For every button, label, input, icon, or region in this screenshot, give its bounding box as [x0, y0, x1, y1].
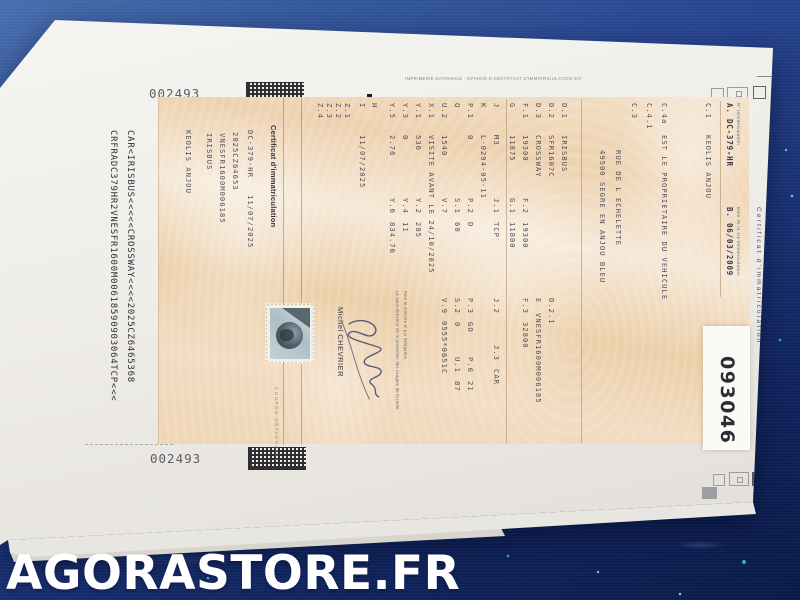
cert-field-cell: CAR	[492, 369, 501, 385]
marianne-emblem	[276, 322, 303, 349]
cert-field-cell: Z.3	[325, 103, 334, 119]
cert-field-row: G11875G.111800	[507, 95, 517, 447]
cert-field-cell: Z.4	[316, 103, 325, 119]
cert-field-cell: IRISBUS	[205, 133, 214, 170]
cert-field-row: JM3J.1TCPJ.2J.3CAR	[491, 95, 501, 447]
cert-field-cell: 19300	[521, 222, 530, 249]
paper-stack: 002493 IMPRIMERIE NATIONALE - EPHIGIE E-…	[0, 0, 800, 600]
cert-field-cell: J.2	[492, 298, 501, 314]
cert-field-row: Z.2	[333, 95, 343, 447]
cert-field-row: KEOLIS ANJOU	[183, 95, 193, 447]
print-density-patch	[702, 487, 717, 499]
cert-field-cell: VNESFR1600M006185	[534, 313, 543, 404]
cert-field-cell: Y.1	[414, 103, 423, 119]
cert-field-cell: P.3	[466, 298, 475, 314]
cert-field-cell: 11	[401, 222, 410, 233]
cert-field-cell: Y.5	[388, 103, 397, 119]
cert-field-cell: F.3	[521, 298, 530, 314]
cert-field-cell: D.1	[560, 103, 569, 119]
cert-field-cell: KEOLIS ANJOU	[704, 135, 713, 199]
cert-field-cell: D.3	[534, 103, 543, 119]
agorastore-watermark: AGORASTORE.FR	[6, 546, 460, 600]
cert-field-row: D.1IRISBUS	[559, 95, 569, 447]
signer-name: Michel CHEVRIER	[336, 307, 345, 377]
cert-field-cell: 11800	[508, 222, 517, 249]
cert-field-row: D.2SFR1607CD.2.1	[546, 95, 556, 447]
cert-field-cell: P.1	[466, 103, 475, 119]
cert-field-cell: F.2	[521, 198, 530, 214]
cert-field-cell: C.4a	[660, 103, 669, 124]
cert-field-cell: 0	[466, 135, 475, 140]
cert-field-cell: 11/07/2025	[246, 195, 255, 248]
cert-field-cell: 21	[466, 381, 475, 392]
cert-field-cell: 2.76	[388, 135, 397, 156]
cert-field-row: X.1VISITE AVANT LE 24/10/2025	[426, 95, 436, 447]
cert-field-cell: IRISBUS	[560, 135, 569, 172]
cert-field-cell: Y.3	[401, 103, 410, 119]
cert-field-cell: M3	[492, 135, 501, 146]
official-delegation-line: Pour le ministre et par délégation,	[403, 291, 408, 361]
cert-field-cell: 11/07/2025	[358, 135, 367, 188]
cert-field-cell: Z.2	[334, 103, 343, 119]
cert-field-cell: 11875	[508, 135, 517, 162]
cert-field-row: 2025CZ64653	[230, 95, 240, 447]
cert-field-row: C.4aEST LE PROPRIETAIRE DU VEHICULE	[659, 95, 669, 447]
cert-field-row: U.21540V.7V.90555*0651C	[439, 95, 449, 447]
divider-line	[720, 101, 721, 297]
cert-field-row: 49500 SEGRE EN ANJOU BLEU	[597, 95, 607, 447]
cert-field-cell: 87	[453, 381, 462, 392]
cert-field-cell: 49500 SEGRE EN ANJOU BLEU	[598, 150, 607, 283]
cert-field-cell: 2025CZ64653	[231, 132, 240, 191]
cert-field-row: C.4.1	[644, 95, 654, 447]
print-calibration-box	[729, 472, 749, 486]
cert-field-cell: TCP	[492, 222, 501, 238]
coupon-title: Certificat d'immatriculation	[269, 125, 278, 227]
coupon-fold-line	[283, 97, 284, 445]
cert-field-cell: I	[358, 103, 367, 108]
cert-field-cell: Z.1	[343, 103, 352, 119]
cert-field-cell: SFR1607C	[547, 135, 556, 178]
cert-field-cell: E	[534, 298, 543, 303]
divider-line	[581, 99, 582, 443]
cert-field-row: QS.160S.20U.187	[452, 95, 462, 447]
cert-field-cell: Q	[453, 103, 462, 108]
registration-certificate: Certificat d'immatriculation N° immatric…	[100, 95, 765, 447]
cert-field-cell: D.2.1	[547, 298, 556, 325]
cert-field-cell: C.4.1	[645, 103, 654, 130]
cert-field-cell: 536	[414, 135, 423, 151]
certificate-rotated-area: Certificat d'immatriculation N° immatric…	[100, 95, 765, 447]
mrz-line-2: CRFRADC379HR2VNESFR1600M00618590903064TC…	[108, 130, 118, 401]
cert-field-cell: P.6	[466, 357, 475, 373]
cert-field-cell: Y.2	[414, 198, 423, 214]
cert-field-row: Z.4	[315, 95, 325, 447]
cert-field-cell: VNESFR1600M006185	[218, 133, 227, 224]
cert-field-cell: 1540	[440, 135, 449, 156]
cert-field-cell: F.1	[521, 103, 530, 119]
cert-field-cell: H	[370, 103, 379, 108]
cert-field-cell: 834.76	[388, 222, 397, 254]
cert-field-cell: C.1	[704, 103, 713, 119]
stamp-background	[270, 308, 310, 359]
cert-field-cell: GO	[466, 322, 475, 333]
cert-field-cell: L-0294-05-11	[479, 135, 488, 199]
cert-field-cell: Y.6	[388, 198, 397, 214]
cert-field-row: VNESFR1600M006185	[217, 95, 227, 447]
cert-field-cell: U.2	[440, 103, 449, 119]
cert-field-row: Z.3	[324, 95, 334, 447]
cert-field-row: D.3CROSSWAYEVNESFR1600M006185	[533, 95, 543, 447]
cert-field-row: P.10P.2DP.3GOP.621	[465, 95, 475, 447]
cert-field-cell: C.3	[630, 103, 639, 119]
plate-number-label: N° immatriculation	[736, 103, 741, 145]
cert-field-cell: 32800	[521, 322, 530, 349]
auction-lot-number: 093046	[716, 356, 738, 444]
cert-field-cell: Y.4	[401, 198, 410, 214]
cert-field-cell: V.9	[440, 298, 449, 314]
certificate-title: Certificat d'immatriculation	[755, 207, 762, 345]
cert-field-row: Y.1536Y.2285	[413, 95, 423, 447]
plate-number-value: A. DC-379-HR	[725, 103, 734, 167]
coupon-fold-line	[301, 97, 302, 445]
cert-field-cell: 60	[453, 222, 462, 233]
cert-field-cell: D	[466, 222, 475, 227]
cert-field-cell: VISITE AVANT LE 24/10/2025	[427, 135, 436, 274]
cert-field-cell: 19300	[521, 135, 530, 162]
auction-lot-sticker: 093046	[703, 326, 750, 450]
cert-field-row: Z.1	[342, 95, 352, 447]
cert-field-cell: CROSSWAY	[534, 135, 543, 178]
cert-field-cell: 0	[453, 322, 462, 327]
cert-field-cell: J	[492, 103, 501, 108]
cert-field-cell: J.1	[492, 198, 501, 214]
cert-field-cell: 285	[414, 222, 423, 238]
cert-field-cell: U.1	[453, 357, 462, 373]
mrz-line-1: CAR<IRISBUS<<<<<CROSSWAY<<<<2025CZ646536…	[125, 130, 135, 383]
corner-crop-mark	[757, 482, 777, 502]
cert-field-cell: KEOLIS ANJOU	[184, 130, 193, 194]
cert-field-row: C.3	[629, 95, 639, 447]
printer-imprint-line: IMPRIMERIE NATIONALE - EPHIGIE E-CERTIFI…	[405, 76, 635, 81]
cert-field-row: F.119300F.219300F.332800	[520, 95, 530, 447]
cert-field-cell: S.1	[453, 198, 462, 214]
cert-field-row: RUE DE L ECHELETTE	[613, 95, 623, 447]
cert-field-cell: EST LE PROPRIETAIRE DU VEHICULE	[660, 135, 669, 300]
photo-of-registration-document: 002493 IMPRIMERIE NATIONALE - EPHIGIE E-…	[0, 0, 800, 600]
corner-crop-mark	[757, 76, 775, 92]
hologram-stamp	[267, 305, 313, 362]
first-registration-date-label: Date de la 1re immatriculation	[736, 207, 741, 276]
cert-field-cell: X.1	[427, 103, 436, 119]
cert-field-cell: DC-379-HR	[246, 130, 255, 178]
print-calibration-box	[713, 474, 725, 486]
cert-field-cell: 0	[401, 135, 410, 140]
cert-field-cell: V.7	[440, 198, 449, 214]
coupon-edge-label: COUPON DÉTACHABLE	[274, 387, 279, 463]
print-calibration-box	[752, 472, 766, 486]
cert-field-row: KL-0294-05-11	[478, 95, 488, 447]
cert-field-cell: K	[479, 103, 488, 108]
cert-field-cell: G	[508, 103, 517, 108]
cert-field-row: IRISBUS	[204, 95, 214, 447]
cert-field-cell: RUE DE L ECHELETTE	[614, 150, 623, 246]
cert-field-cell: 0555*0651C	[440, 321, 449, 374]
cert-field-cell: P.2	[466, 198, 475, 214]
cert-field-cell: J.3	[492, 345, 501, 361]
cert-field-cell: S.2	[453, 298, 462, 314]
cert-field-cell: D.2	[547, 103, 556, 119]
cert-field-row: DC-379-HR11/07/2025	[245, 95, 255, 447]
first-registration-date-value: B. 06/03/2009	[725, 207, 734, 276]
cert-field-cell: G.1	[508, 198, 517, 214]
serial-number-bottom: 002493	[150, 451, 201, 466]
